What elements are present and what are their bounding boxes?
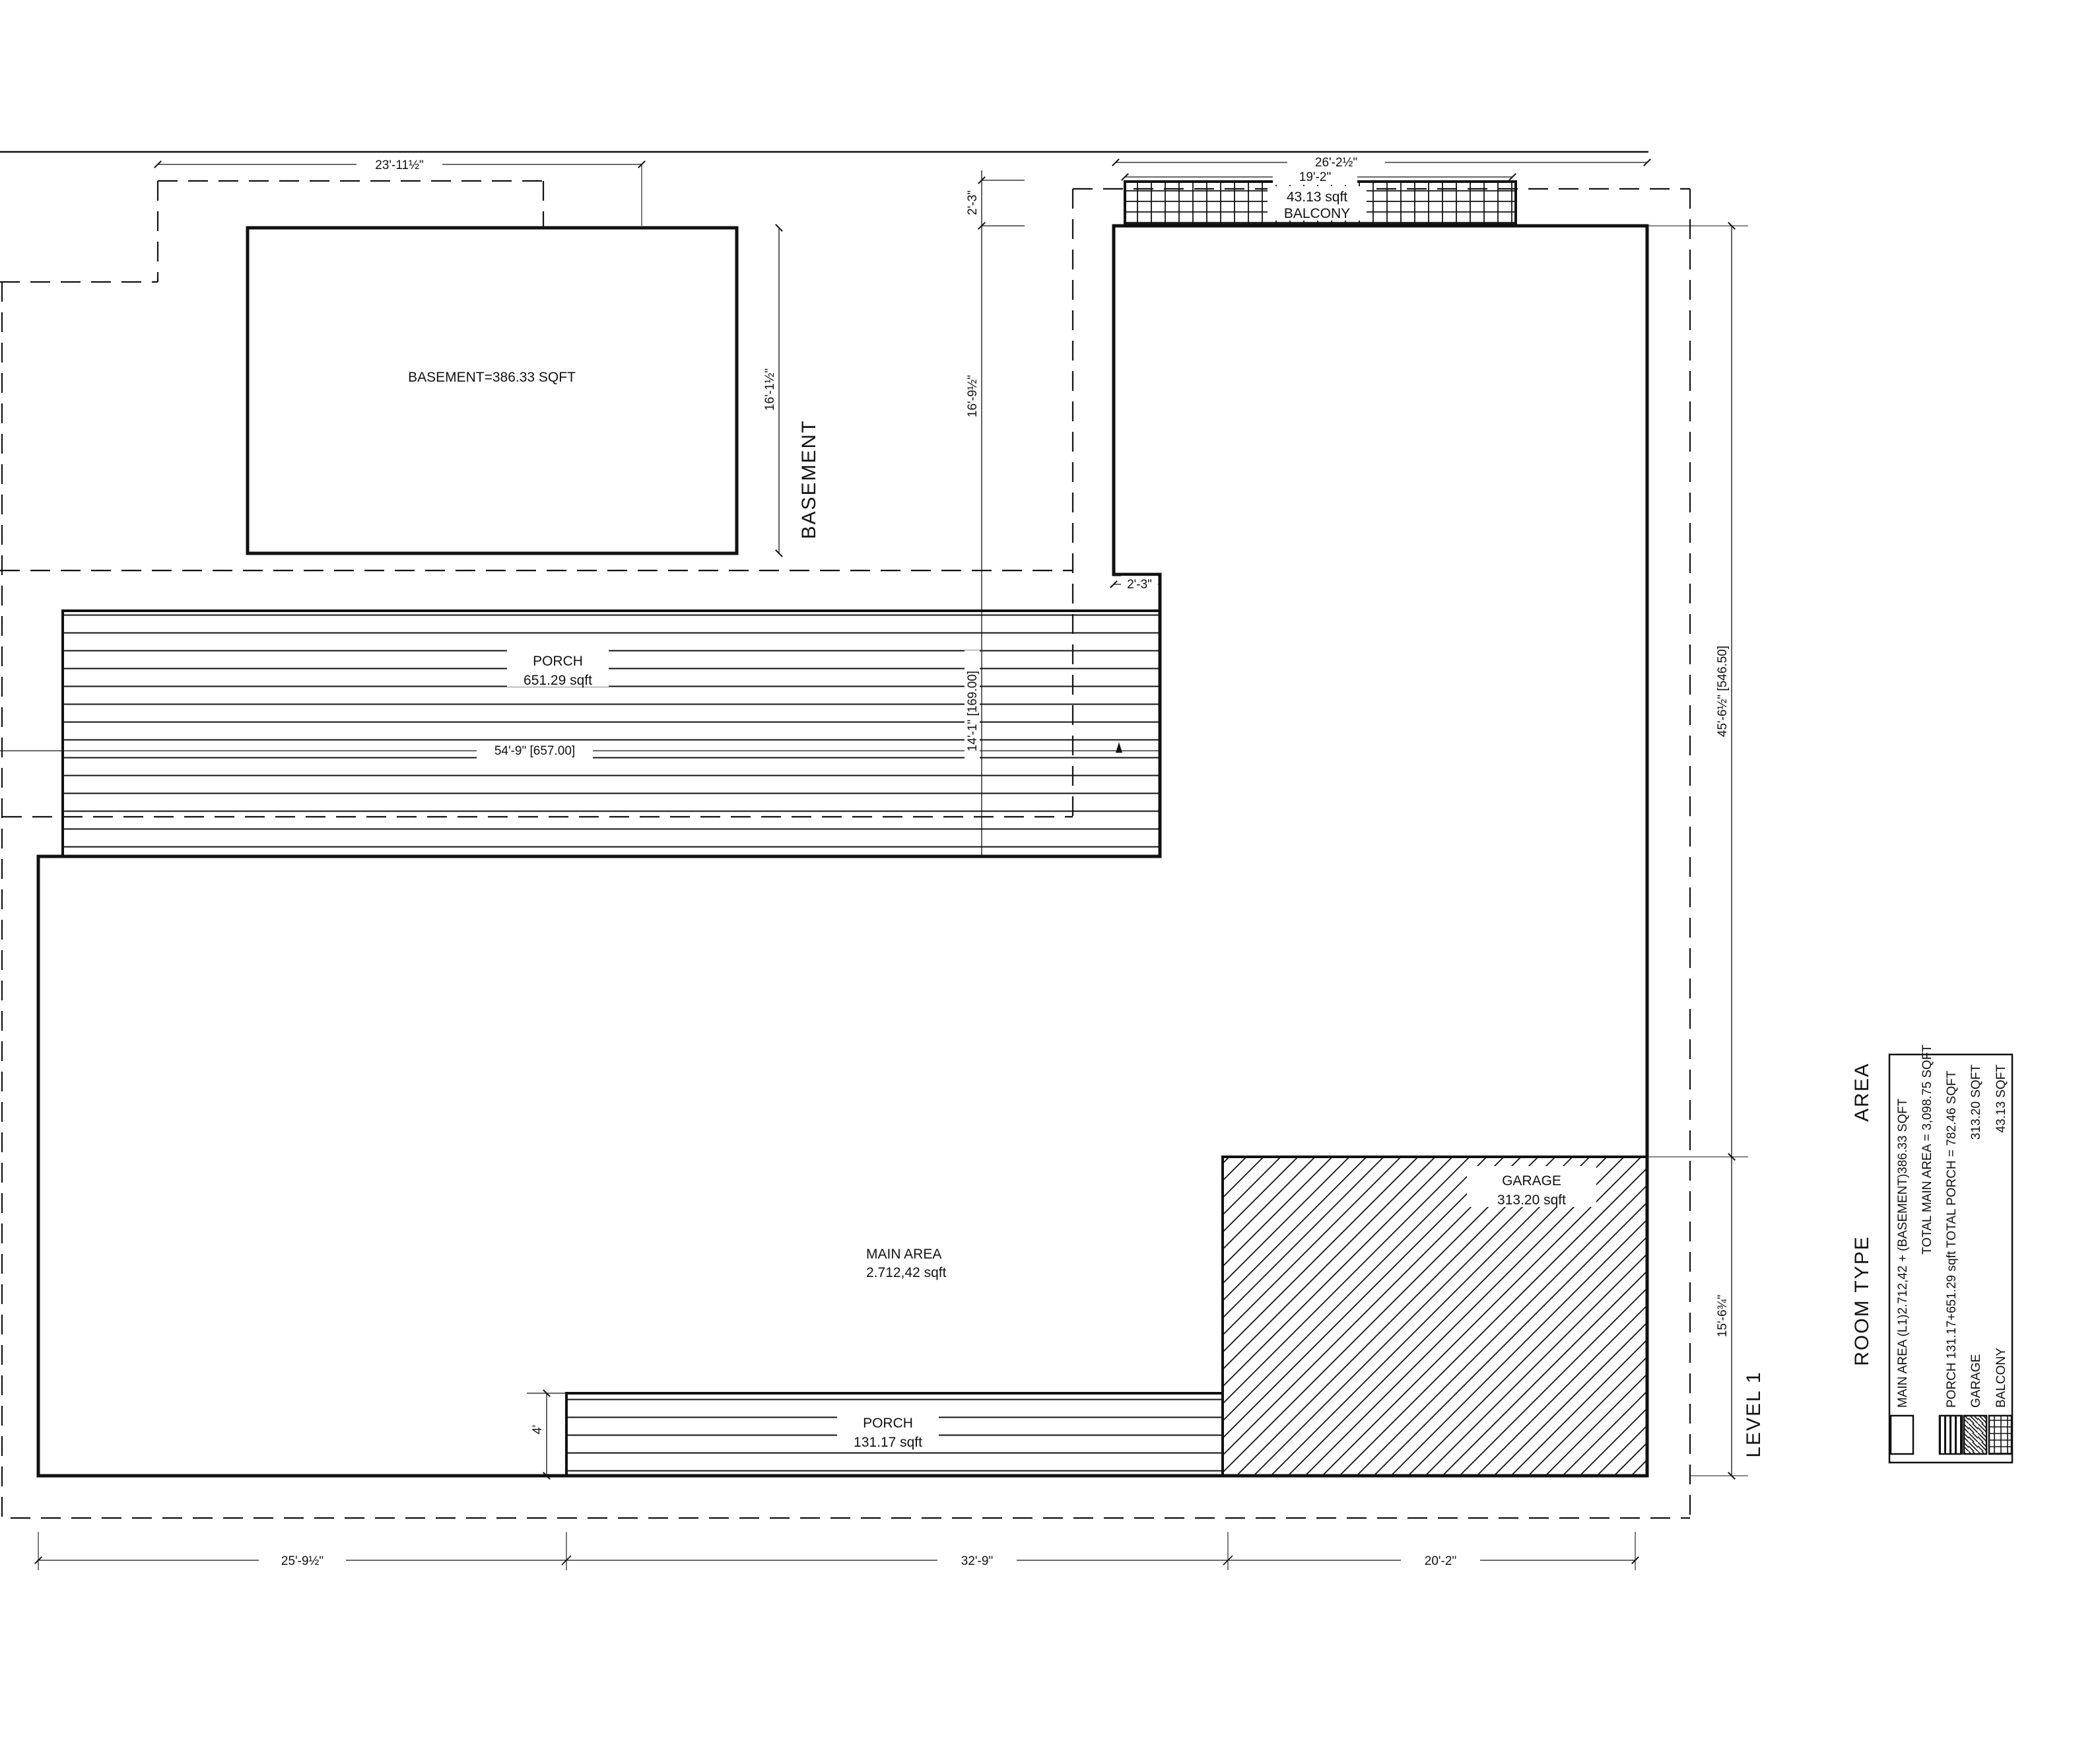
bottom-left-dim-text: 25'-9½" bbox=[281, 1554, 323, 1568]
basement-height-dimension: 16'-1½" bbox=[762, 228, 779, 553]
main-area-name: MAIN AREA bbox=[866, 1247, 941, 1262]
legend-swatch-main-area bbox=[1891, 1416, 1913, 1454]
legend-row-garage-value: 313.20 SQFT bbox=[1969, 1064, 1983, 1140]
basement-outline bbox=[248, 228, 737, 553]
bottom-right-dim-text: 20'-2" bbox=[1425, 1554, 1456, 1568]
right-upper-dim-text: 45'-6½" [546.50] bbox=[1716, 646, 1730, 737]
garage-area: 313.20 sqft bbox=[1497, 1192, 1566, 1208]
porch-length-dim-text: 54'-9" [657.00] bbox=[494, 744, 575, 758]
basement-room-label: BASEMENT=386.33 SQFT bbox=[408, 370, 576, 385]
legend-row-balcony-name: BALCONY bbox=[1994, 1348, 2008, 1408]
legend-swatch-balcony bbox=[1989, 1416, 2012, 1454]
legend: AREA ROOM TYPE MAIN AREA (L1)2.712,42 + … bbox=[1851, 1045, 2012, 1463]
porch-upper-hatch bbox=[63, 611, 1160, 856]
legend-row-main-area: MAIN AREA (L1)2.712,42 + (BASEMENT)386.3… bbox=[1896, 1098, 1910, 1408]
balcony-width-dim-text: 19'-2" bbox=[1299, 170, 1331, 184]
garage-name: GARAGE bbox=[1502, 1173, 1561, 1189]
garage: GARAGE 313.20 sqft bbox=[1223, 1157, 1647, 1476]
floorplan-sheet: BASEMENT=386.33 SQFT 23'-11½" 16'-1½" BA… bbox=[0, 0, 2100, 1761]
svg-text:LEVEL 1: LEVEL 1 bbox=[1743, 1371, 1765, 1457]
bottom-dimensions: 25'-9½" 32'-9" 20'-2" bbox=[38, 1532, 1635, 1570]
right-lower-dim-text: 15'-6¾" bbox=[1716, 1295, 1730, 1337]
svg-text:BASEMENT: BASEMENT bbox=[798, 419, 820, 539]
balcony-area: 43.13 sqft bbox=[1287, 190, 1347, 205]
legend-row-porch: PORCH 131.17+651.29 sqft TOTAL PORCH = 7… bbox=[1945, 1070, 1959, 1408]
basement-section-title: BASEMENT bbox=[798, 419, 820, 539]
porch-upper-area: 651.29 sqft bbox=[524, 673, 592, 688]
porch-lower: PORCH 131.17 sqft 4' bbox=[527, 1393, 1223, 1476]
porch-lower-name: PORCH bbox=[863, 1416, 913, 1431]
legend-row-total-main: TOTAL MAIN AREA = 3,098.75 SQFT bbox=[1920, 1045, 1934, 1255]
main-area-value: 2.712,42 sqft bbox=[866, 1265, 947, 1280]
upper-wall-dim-text: 16'-9½" bbox=[966, 375, 980, 417]
basement-width-dim-text: 23'-11½" bbox=[375, 158, 423, 172]
basement-width-dimension: 23'-11½" bbox=[158, 155, 642, 226]
legend-row-balcony-value: 43.13 SQFT bbox=[1994, 1064, 2008, 1133]
porch-depth-dim-text: 14'-1" [169.00] bbox=[966, 671, 980, 751]
step-top-dim-text: 2'-3" bbox=[966, 190, 980, 215]
bottom-mid-dim-text: 32'-9" bbox=[961, 1554, 993, 1568]
basement-height-dim-text: 16'-1½" bbox=[763, 368, 777, 411]
level1-section-title: LEVEL 1 bbox=[1743, 1371, 1765, 1457]
porch-lower-depth-dim-text: 4' bbox=[531, 1425, 545, 1434]
porch-lower-area: 131.17 sqft bbox=[854, 1435, 922, 1450]
balcony-outer-dimension: 26'-2½" bbox=[1116, 153, 1647, 170]
porch-upper: PORCH 651.29 sqft 54'-9" [657.00] bbox=[0, 611, 1160, 856]
porch-upper-name: PORCH bbox=[533, 654, 583, 669]
step-mid-dim-text: 2'-3" bbox=[1127, 578, 1152, 592]
basement-plan: BASEMENT=386.33 SQFT 23'-11½" 16'-1½" BA… bbox=[158, 155, 820, 553]
floorplan-drawing: BASEMENT=386.33 SQFT 23'-11½" 16'-1½" BA… bbox=[0, 0, 2100, 1761]
legend-header-room-type: ROOM TYPE bbox=[1851, 1235, 1873, 1365]
balcony-outer-dim-text: 26'-2½" bbox=[1315, 156, 1357, 170]
legend-row-garage-name: GARAGE bbox=[1969, 1354, 1983, 1408]
legend-swatch-porch bbox=[1940, 1416, 1962, 1454]
balcony-name: BALCONY bbox=[1284, 206, 1350, 221]
right-dimensions: 45'-6½" [546.50] 15'-6¾" LEVEL 1 bbox=[1648, 226, 1765, 1476]
legend-swatch-garage bbox=[1964, 1416, 1986, 1454]
step-mid-dimension: 2'-3" bbox=[1114, 576, 1160, 592]
legend-header-area: AREA bbox=[1851, 1062, 1873, 1122]
